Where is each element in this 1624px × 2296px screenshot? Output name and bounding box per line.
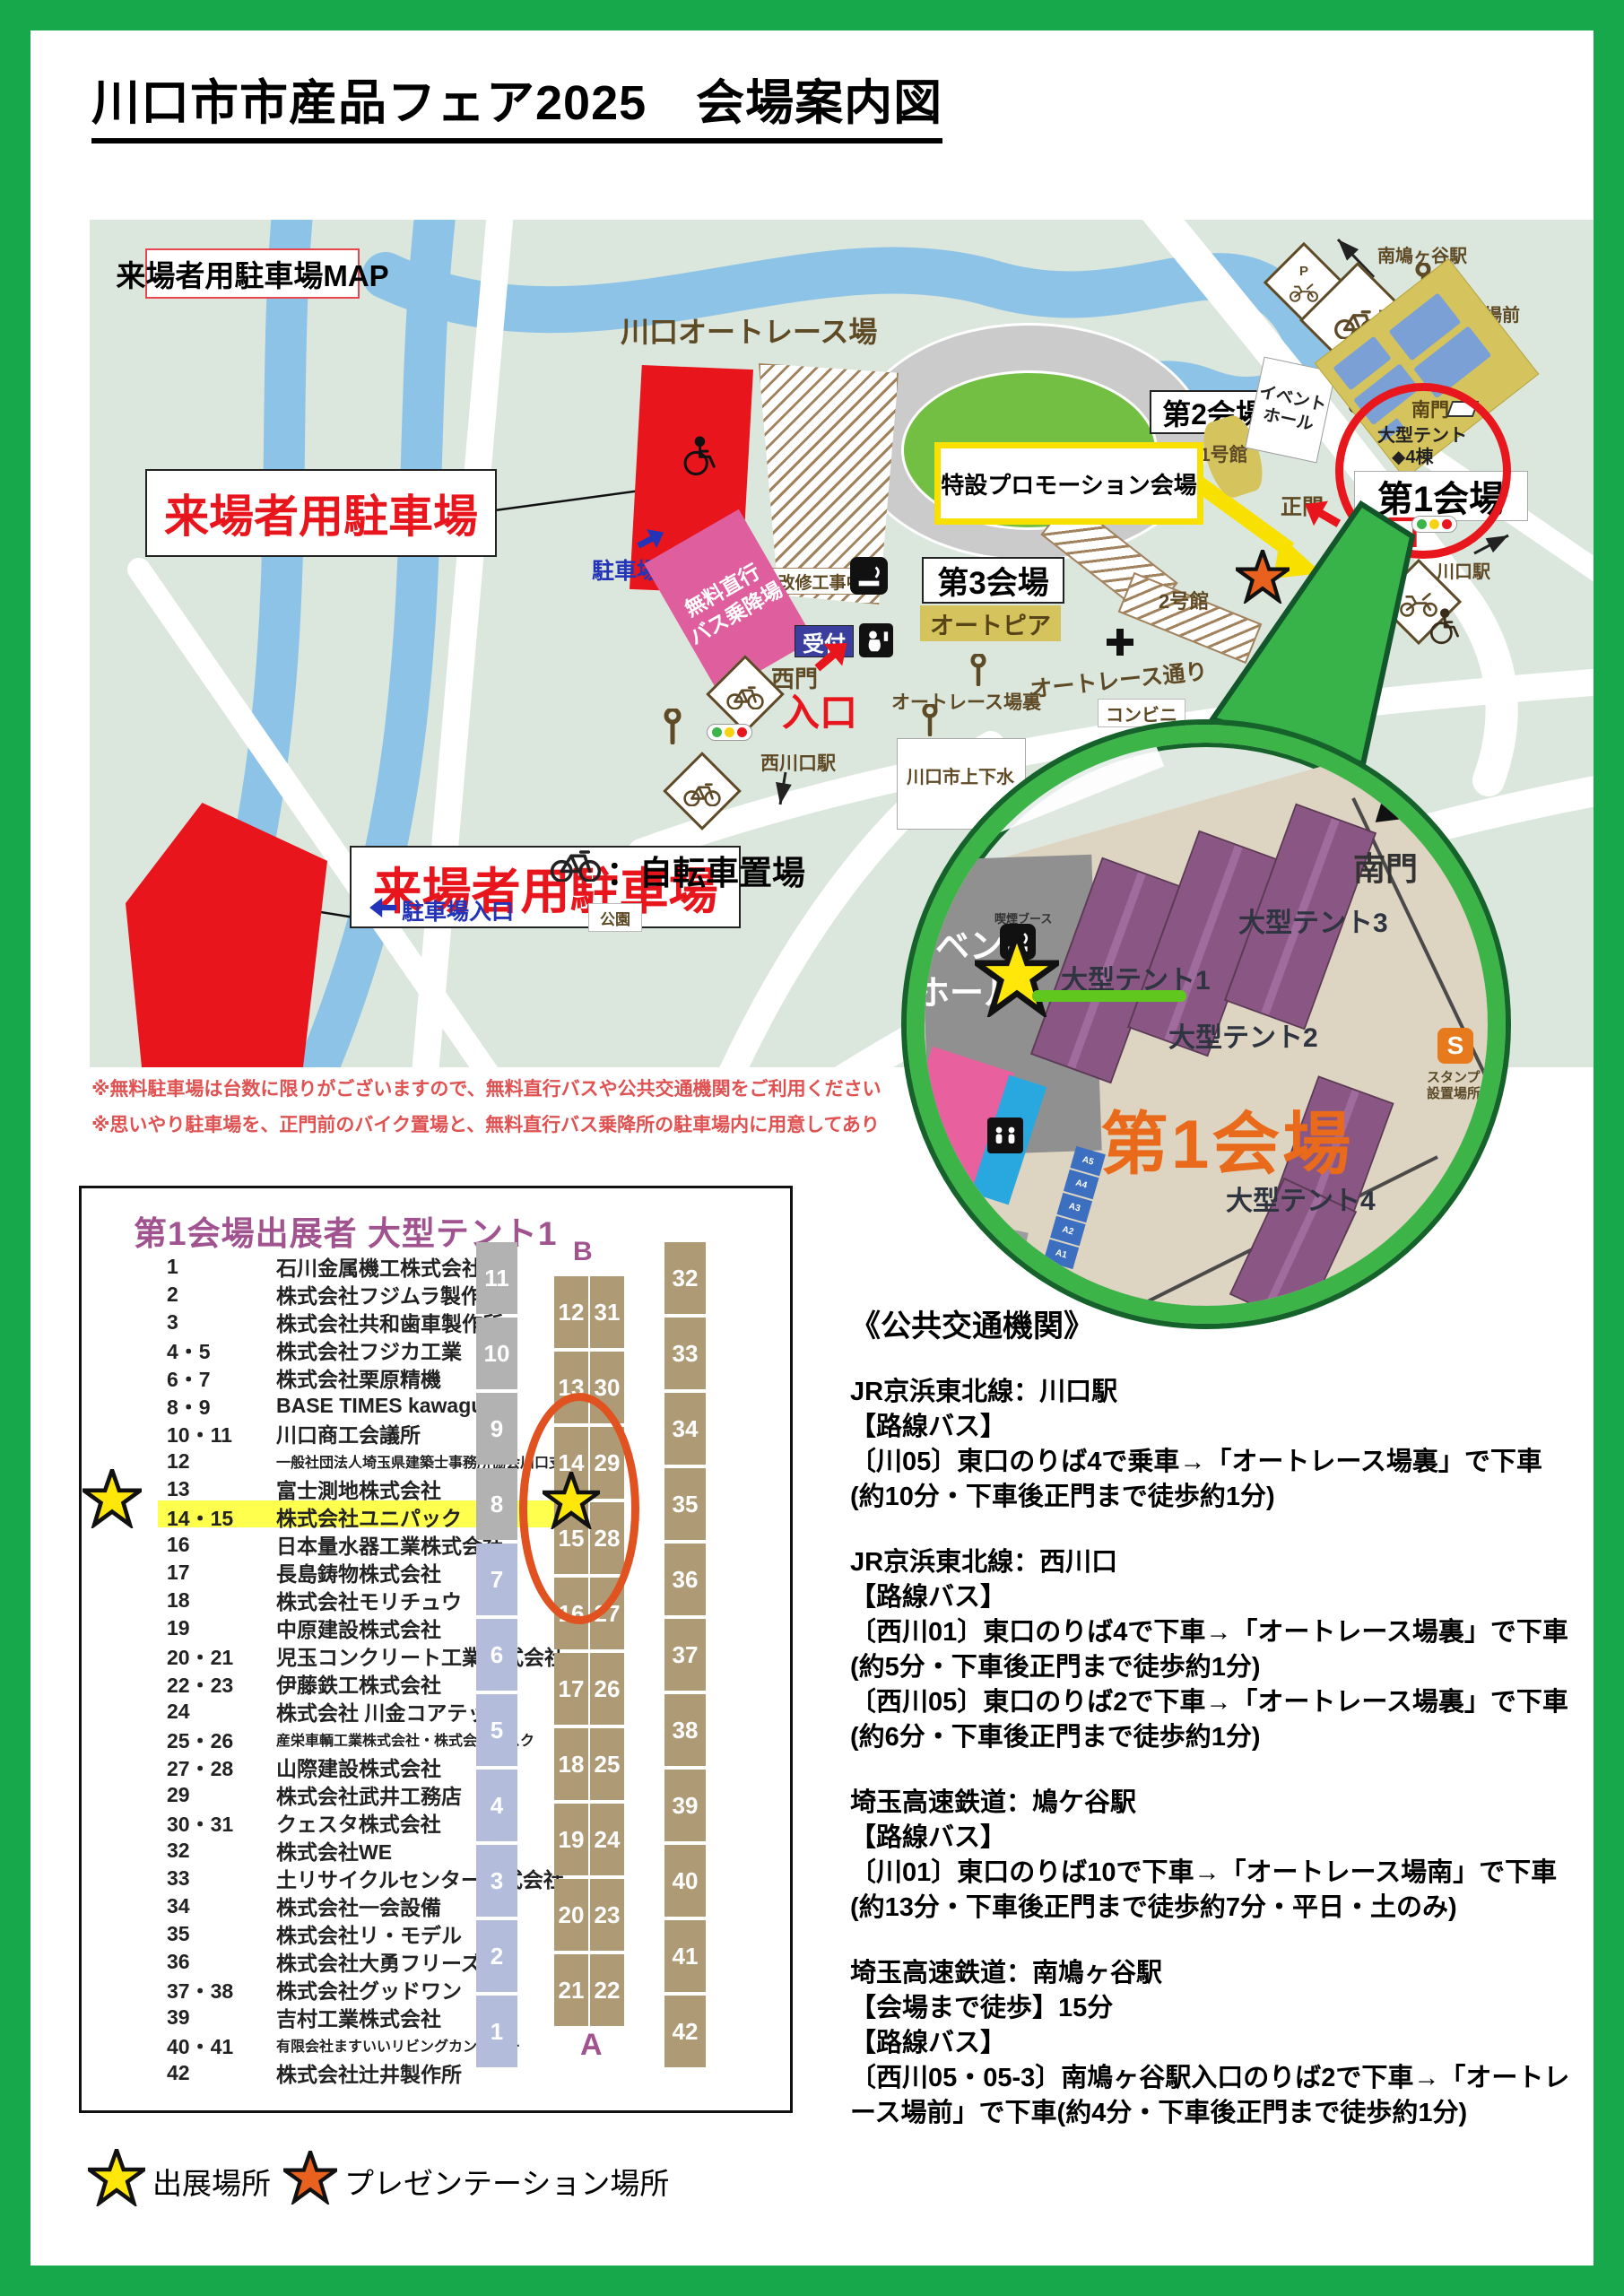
exhibitor-row-highlighted: 14・15株式会社ユニパック: [167, 1503, 462, 1530]
visitor-parking-label-1: 来場者用駐車場: [164, 481, 478, 545]
smoking-area-icon: [850, 557, 888, 595]
inset-tent3-label: 大型テント3: [1238, 900, 1388, 940]
exhibitor-row: 30・31クェスタ株式会社: [167, 1809, 441, 1836]
diagram-cell: 1: [476, 1996, 517, 2067]
diagram-cell: 9: [476, 1393, 517, 1465]
diagram-cell: 37: [664, 1619, 706, 1691]
exhibitor-row: 39吉村工業株式会社: [167, 2004, 441, 2031]
exhibitor-name: クェスタ株式会社: [276, 1807, 441, 1838]
tent1-underline: [1032, 990, 1186, 1002]
exhibitor-no: 29: [167, 1783, 276, 1807]
poster-page: 川口市市産品フェア2025 会場案内図: [0, 0, 1624, 2296]
exhibitor-name: 株式会社WE: [276, 1835, 392, 1865]
exhibitor-row: 36株式会社大勇フリーズ: [167, 1948, 482, 1975]
park-chip: 公園: [588, 903, 642, 932]
transport-line: JR京浜東北線：川口駅: [850, 1375, 1589, 1410]
diagram-cell: 23: [590, 1879, 624, 1951]
public-transport-section: 《公共交通機関》 JR京浜東北線：川口駅 【路線バス】 〔川05〕東口のりば4で…: [850, 1309, 1589, 2131]
traffic-light-icon: [707, 724, 752, 741]
exhibitor-name: 株式会社リ・モデル: [276, 1918, 462, 1949]
diagram-cell: 4: [476, 1770, 517, 1841]
diagram-cell: 39: [664, 1770, 706, 1841]
transport-line: 【路線バス】: [850, 1580, 1589, 1615]
exhibit-star-icon: [543, 1472, 600, 1529]
stamp-label-line2: 設置場所: [1427, 1083, 1481, 1102]
diagram-cell: 35: [664, 1468, 706, 1540]
diagram-cell: 7: [476, 1544, 517, 1615]
exhibitor-no: 6・7: [167, 1362, 276, 1393]
diagram-cell: 5: [476, 1694, 517, 1766]
exhibitor-no: 19: [167, 1616, 276, 1640]
venue1-inset-map: イベント ホール 南門 大型テント3 喫煙ブース 大型テント1 大型テント2 第…: [907, 725, 1506, 1324]
restroom-icon: [987, 1118, 1023, 1153]
exhibitor-no: 30・31: [167, 1807, 276, 1838]
diagram-b-label: B: [573, 1237, 593, 1267]
transport-line: 〔西川01〕東口のりば4で下車→「オートレース場裏」で下車(約5分・下車後正門ま…: [850, 1615, 1589, 1685]
exhibitor-no: 17: [167, 1561, 276, 1585]
exhibitor-name: 株式会社辻井製作所: [276, 2057, 462, 2088]
bicycle-icon: [549, 840, 603, 882]
exhibitor-no: 1: [167, 1255, 276, 1279]
inset-tent4-label: 大型テント4: [1226, 1178, 1376, 1218]
diagram-cell: 26: [590, 1653, 624, 1725]
exhibitor-name: 中原建設株式会社: [276, 1613, 441, 1643]
exhibitor-row: 32株式会社WE: [167, 1837, 392, 1864]
transport-block-nishikawaguchi: JR京浜東北線：西川口 【路線バス】 〔西川01〕東口のりば4で下車→「オートレ…: [850, 1545, 1589, 1755]
exhibit-star-icon: [975, 933, 1059, 1017]
exhibitor-no: 24: [167, 1700, 276, 1724]
transport-line: (約10分・下車後正門まで徒歩約1分): [850, 1480, 1589, 1515]
exhibitor-row: 3株式会社共和歯車製作所: [167, 1309, 503, 1335]
nursing-room-icon: [859, 623, 893, 657]
diagram-cell: 32: [664, 1242, 706, 1314]
diagram-cell: 6: [476, 1619, 517, 1691]
exhibitor-name: 株式会社武井工務店: [276, 1779, 462, 1810]
diagram-cell: 18: [554, 1728, 588, 1800]
exhibitor-no: 13: [167, 1477, 276, 1501]
exhibitor-no: 12: [167, 1449, 276, 1474]
exhibitor-name: 株式会社グッドワン: [276, 1974, 462, 2005]
exhibitor-no: 39: [167, 2005, 276, 2030]
transport-line: 〔川01〕東口のりば10で下車→「オートレース場南」で下車(約13分・下車後正門…: [850, 1856, 1589, 1926]
exhibitor-name: 日本量水器工業株式会社: [276, 1529, 503, 1560]
diagram-cell: 36: [664, 1544, 706, 1615]
diagram-cell: 31: [590, 1276, 624, 1348]
diagram-cell: 25: [590, 1728, 624, 1800]
transport-line: 〔川05〕東口のりば4で乗車→「オートレース場裏」で下車: [850, 1445, 1589, 1480]
exhibitor-no: 37・38: [167, 1974, 276, 2005]
park-label: 公園: [600, 907, 630, 929]
exhibitor-row: 17長島鋳物株式会社: [167, 1559, 441, 1586]
exhibitor-name: 株式会社栗原精機: [276, 1362, 441, 1393]
exhibitor-no: 22・23: [167, 1668, 276, 1699]
autopia-building: オートピア: [920, 605, 1061, 641]
exhibitor-name: 川口商工会議所: [276, 1418, 421, 1448]
exhibitor-no: 35: [167, 1922, 276, 1946]
exhibitor-row: 29株式会社武井工務店: [167, 1781, 462, 1808]
p-sign-label: P: [1299, 264, 1308, 279]
exhibitor-name: 児玉コンクリート工業株式会社: [276, 1640, 565, 1671]
diagram-cell: 2: [476, 1920, 517, 1992]
exhibitor-no: 36: [167, 1950, 276, 1974]
transport-block-minamihatogaya: 埼玉高速鉄道：南鳩ヶ谷駅 【会場まで徒歩】15分 【路線バス】 〔西川05・05…: [850, 1956, 1589, 2131]
exhibitor-row: 27・28山際建設株式会社: [167, 1753, 441, 1780]
diagram-cell: 40: [664, 1845, 706, 1917]
transport-block-kawaguchi: JR京浜東北線：川口駅 【路線バス】 〔川05〕東口のりば4で乗車→「オートレー…: [850, 1375, 1589, 1515]
diagram-cell: 42: [664, 1996, 706, 2067]
legend-presentation-label: プレゼンテーション場所: [344, 2160, 669, 2203]
exhibitor-no: 20・21: [167, 1640, 276, 1671]
stamp-s-letter: S: [1447, 1031, 1464, 1060]
exhibitor-row: 8・9BASE TIMES kawaguchi: [167, 1392, 514, 1419]
venue3-label: 第3会場: [937, 558, 1048, 604]
exhibitor-no: 2: [167, 1283, 276, 1307]
exhibitor-name: 山際建設株式会社: [276, 1752, 441, 1782]
exhibitor-row: 10・11川口商工会議所: [167, 1420, 421, 1447]
exhibitor-row: 19中原建設株式会社: [167, 1614, 441, 1641]
exhibitor-row: 1石川金属機工株式会社: [167, 1253, 482, 1280]
exhibitor-no: 18: [167, 1588, 276, 1613]
inset-south-gate-label: 南門: [1353, 843, 1418, 890]
legend-exhibit-label: 出展場所: [152, 2160, 271, 2203]
transport-line: 埼玉高速鉄道：南鳩ヶ谷駅: [850, 1956, 1589, 1991]
exhibitor-name: 株式会社モリチュウ: [276, 1585, 462, 1615]
exhibitor-no: 10・11: [167, 1418, 276, 1448]
autorace-track-label: 川口オートレース場: [621, 309, 877, 351]
exhibitor-no: 3: [167, 1310, 276, 1335]
venue3-box: 第3会場: [922, 557, 1064, 604]
exhibitor-name: 伊藤鉄工株式会社: [276, 1668, 441, 1699]
first-aid-icon: [1107, 629, 1133, 656]
diagram-cell: 10: [476, 1318, 517, 1389]
exhibitor-name: 吉村工業株式会社: [276, 2002, 441, 2032]
bicycle-legend-label: ：自転車置場: [606, 846, 805, 894]
exhibitor-no: 16: [167, 1533, 276, 1557]
exhibitor-name: 株式会社 川金コアテック: [276, 1696, 508, 1726]
diagram-a-label: A: [580, 2028, 603, 2063]
page-title: 川口市市産品フェア2025 会場案内図: [91, 63, 942, 143]
exhibitor-no: 40・41: [167, 2030, 276, 2060]
exhibitor-name: 富士測地株式会社: [276, 1474, 441, 1504]
exhibitor-name: 石川金属機工株式会社: [276, 1251, 482, 1282]
stamp-s-icon: S: [1437, 1028, 1473, 1064]
exhibitor-row: 13富士測地株式会社: [167, 1475, 441, 1502]
hall1-label: 1号館: [1200, 440, 1248, 467]
transport-line: 〔西川05・05-3〕南鳩ヶ谷駅入口のりば2で下車→「オートレース場前」で下車(…: [850, 2061, 1589, 2131]
diagram-cell: 22: [590, 1954, 624, 2026]
exhibitor-name: 株式会社一会設備: [276, 1891, 441, 1921]
parking-map-title-box: 来場者用駐車場MAP: [145, 248, 360, 299]
exhibitor-name: 株式会社フジムラ製作所: [276, 1279, 502, 1309]
exhibitor-no: 32: [167, 1839, 276, 1863]
transport-line: 埼玉高速鉄道：鳩ケ谷駅: [850, 1786, 1589, 1821]
exhibitor-no: 33: [167, 1866, 276, 1891]
note-line-2: ※思いやり駐車場を、正門前のバイク置場と、無料直行バス乗降所の駐車場内に用意して…: [91, 1110, 880, 1137]
bus-stop-pole-icon: [970, 654, 986, 686]
wheelchair-icon: [677, 435, 718, 476]
autopia-label: オートピア: [930, 606, 1051, 641]
exhibitor-list-box: 第1会場出展者 大型テント1 1石川金属機工株式会社 2株式会社フジムラ製作所 …: [79, 1186, 793, 2113]
diagram-cell: 20: [554, 1879, 588, 1951]
transport-line: JR京浜東北線：西川口: [850, 1545, 1589, 1580]
exhibitor-name: 株式会社大勇フリーズ: [276, 1946, 482, 1977]
transport-line: 【路線バス】: [850, 1821, 1589, 1856]
exhibitor-row: 4・5株式会社フジカ工業: [167, 1336, 462, 1363]
exhibitor-name: 土リサイクルセンター株式会社: [276, 1863, 564, 1893]
entrance-label-2: 入口: [782, 683, 857, 737]
exhibitor-no: 42: [167, 2061, 276, 2085]
parking-map-title: 来場者用駐車場MAP: [116, 252, 388, 295]
exhibitor-no: 4・5: [167, 1335, 276, 1365]
exhibit-star-icon: [88, 2149, 145, 2206]
diagram-cell: 19: [554, 1804, 588, 1875]
inset-tent2-label: 大型テント2: [1168, 1015, 1318, 1055]
nishikawaguchi-station-label: 西川口駅: [760, 749, 836, 776]
parking-entrance-arrow-2: [369, 898, 396, 918]
diagram-cell: 11: [476, 1242, 517, 1314]
transport-line: 【路線バス】: [850, 1410, 1589, 1445]
bus-stop-autorace-ura: オートレース場裏: [891, 688, 1041, 715]
visitor-parking-box-1: 来場者用駐車場: [145, 469, 497, 557]
transport-block-hatogaya: 埼玉高速鉄道：鳩ケ谷駅 【路線バス】 〔川01〕東口のりば10で下車→「オートレ…: [850, 1786, 1589, 1926]
exhibitor-row: 22・23伊藤鉄工株式会社: [167, 1670, 441, 1697]
diagram-cell: 12: [554, 1276, 588, 1348]
exhibitor-row: 6・7株式会社栗原精機: [167, 1364, 441, 1391]
note-line-1: ※無料駐車場は台数に限りがございますので、無料直行バスや公共交通機関をご利用くだ…: [91, 1074, 881, 1101]
bus-stop-pole-icon: [664, 709, 682, 744]
exhibitor-no: 27・28: [167, 1752, 276, 1782]
exhibitor-no: 8・9: [167, 1390, 276, 1421]
exhibitor-no: 25・26: [167, 1724, 276, 1754]
transport-line: 【会場まで徒歩】15分: [850, 1991, 1589, 2026]
exhibitor-row: 35株式会社リ・モデル: [167, 1920, 462, 1947]
diagram-cell: 8: [476, 1468, 517, 1540]
diagram-cell: 24: [590, 1804, 624, 1875]
exhibitor-name: 長島鋳物株式会社: [276, 1557, 441, 1587]
diagram-cell: 41: [664, 1920, 706, 1992]
exhibitor-no: 14・15: [167, 1501, 276, 1532]
parking-entrance-label-2: 駐車場入口: [402, 894, 514, 926]
exhibitor-row: 34株式会社一会設備: [167, 1892, 441, 1919]
exhibitor-row: 37・38株式会社グッドワン: [167, 1976, 462, 2003]
exhibitor-name: 株式会社フジカ工業: [276, 1335, 462, 1365]
diagram-cell: 33: [664, 1318, 706, 1389]
exhibitor-no: 34: [167, 1894, 276, 1918]
diagram-cell: 3: [476, 1845, 517, 1917]
diagram-cell: 21: [554, 1954, 588, 2026]
exhibitor-row: 18株式会社モリチュウ: [167, 1587, 462, 1613]
exhibitor-row: 40・41有限会社ますいいリビングカンパニー: [167, 2031, 520, 2058]
transport-line: 【路線バス】: [850, 2026, 1589, 2061]
exhibitor-row: 42株式会社辻井製作所: [167, 2059, 462, 2086]
diagram-cell: 34: [664, 1393, 706, 1465]
exhibitor-row: 24株式会社 川金コアテック: [167, 1698, 508, 1725]
exhibit-star-icon: [83, 1469, 142, 1528]
inset-venue1-label: 第1会場: [1100, 1089, 1353, 1187]
presentation-star-icon: [283, 2151, 337, 2205]
exhibitor-row: 2株式会社フジムラ製作所: [167, 1281, 502, 1308]
exhibitor-name: 株式会社ユニパック: [276, 1501, 462, 1532]
exhibitor-row: 16日本量水器工業株式会社: [167, 1531, 503, 1558]
diagram-cell: 38: [664, 1694, 706, 1766]
exhibitor-name: 株式会社共和歯車製作所: [276, 1307, 503, 1337]
transport-line: 〔西川05〕東口のりば2で下車→「オートレース場裏」で下車(約6分・下車後正門ま…: [850, 1685, 1589, 1755]
diagram-cell: 17: [554, 1653, 588, 1725]
